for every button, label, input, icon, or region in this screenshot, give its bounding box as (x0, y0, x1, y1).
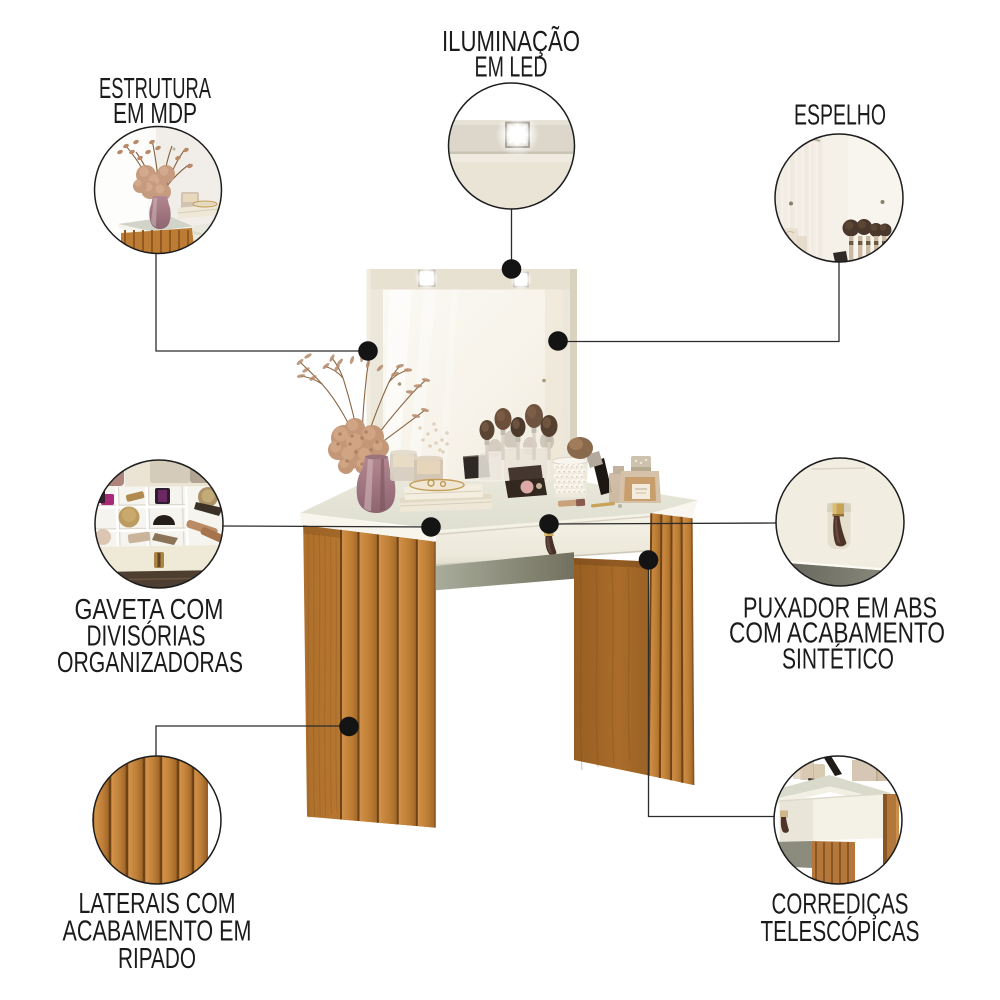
svg-text:EM LED: EM LED (475, 52, 548, 84)
svg-text:EM MDP: EM MDP (113, 98, 197, 130)
svg-text:ORGANIZADORAS: ORGANIZADORAS (57, 647, 243, 679)
svg-text:ESPELHO: ESPELHO (794, 100, 886, 132)
svg-text:SINTÉTICO: SINTÉTICO (782, 644, 894, 676)
svg-text:TELESCÓPICAS: TELESCÓPICAS (761, 916, 920, 948)
svg-text:RIPADO: RIPADO (118, 943, 196, 975)
